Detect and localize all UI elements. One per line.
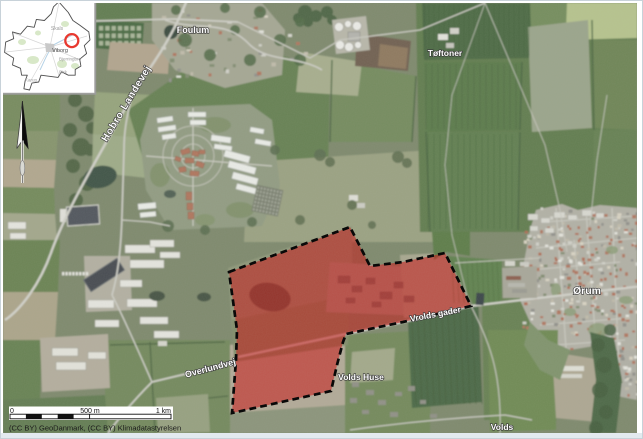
svg-text:Viborg: Viborg (52, 48, 68, 54)
svg-text:Tøftoner: Tøftoner (428, 48, 463, 58)
svg-text:Karup: Karup (25, 78, 38, 83)
svg-text:Skals: Skals (51, 26, 64, 32)
svg-text:Foulum: Foulum (177, 25, 210, 35)
svg-text:Volds: Volds (491, 422, 514, 432)
svg-text:Bjerringbro: Bjerringbro (59, 57, 82, 62)
svg-text:Birk: Birk (59, 70, 67, 75)
svg-text:Ørum: Ørum (573, 285, 601, 297)
svg-text:Volds Huse: Volds Huse (338, 372, 384, 382)
svg-text:(CC BY) GeoDanmark, (CC BY) Kl: (CC BY) GeoDanmark, (CC BY) Klimadatasty… (9, 424, 181, 433)
